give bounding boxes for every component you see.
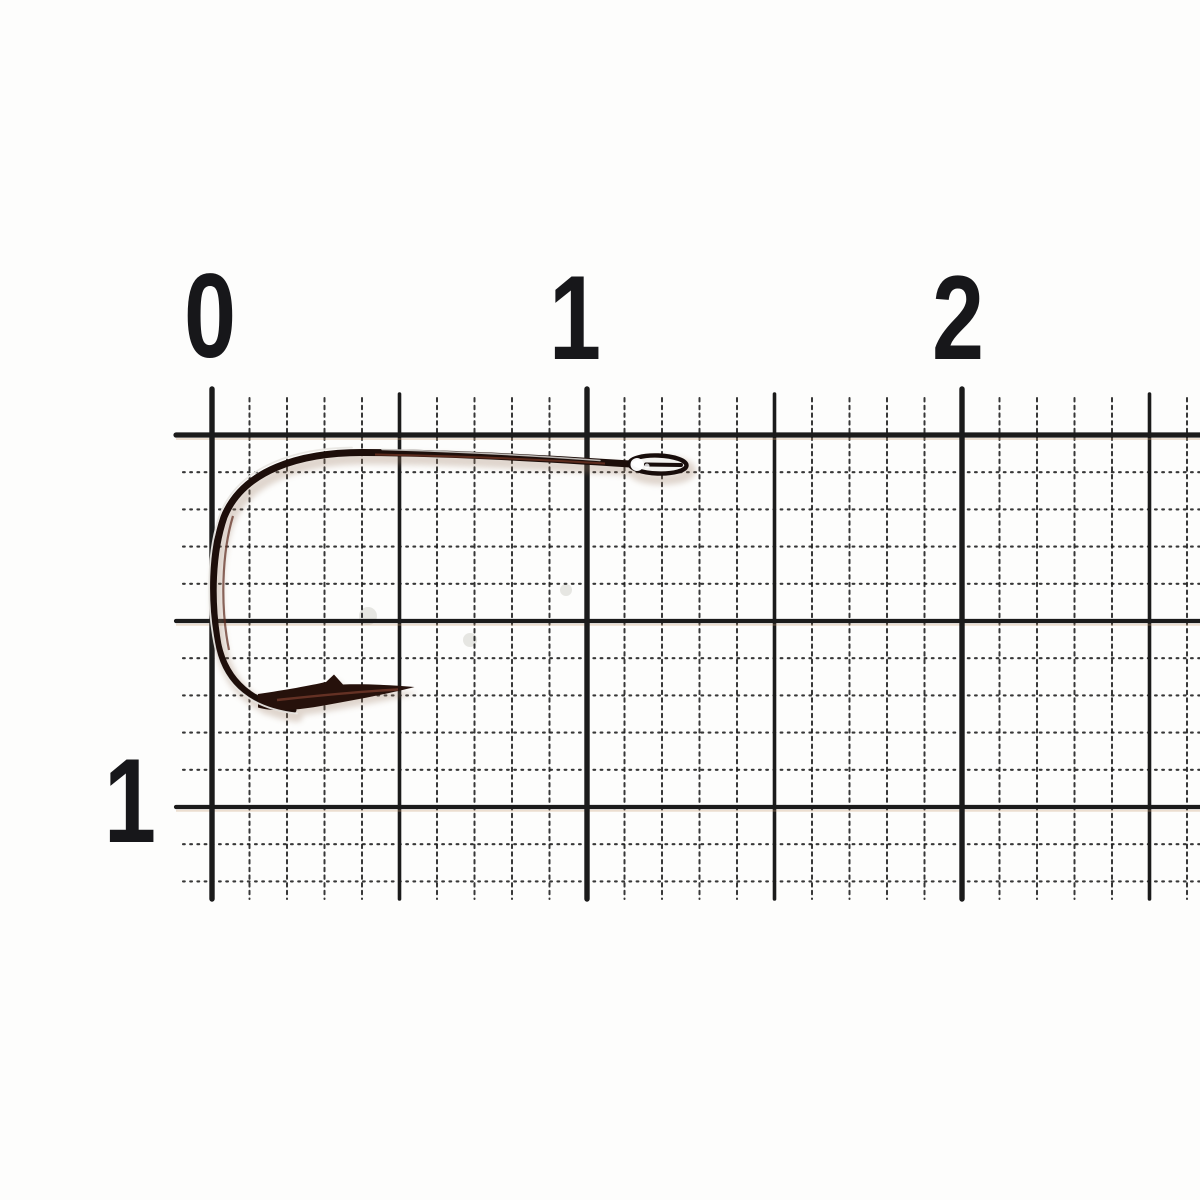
fishing-hook: [209, 448, 690, 717]
hook-eye-slot: [646, 465, 681, 466]
graph-paper-scene: [0, 0, 1200, 1200]
hook-eye: [629, 455, 687, 475]
hook-eye-highlight: [631, 458, 644, 471]
hook-shadow: [217, 459, 690, 717]
hook-wire: [213, 453, 630, 711]
ruler-mark-0cm: 0: [184, 256, 236, 376]
paper-smudge: [560, 584, 572, 596]
ruler-mark-1cm: 1: [549, 258, 601, 378]
ruler-mark-2cm: 2: [932, 258, 984, 378]
paper-smudges: [359, 584, 572, 647]
photo-fishing-hook-on-graph-paper: 0 1 2 1: [0, 0, 1200, 1200]
hook-eye-glint: [645, 464, 650, 469]
ruler-side-mark-1cm: 1: [104, 741, 156, 861]
